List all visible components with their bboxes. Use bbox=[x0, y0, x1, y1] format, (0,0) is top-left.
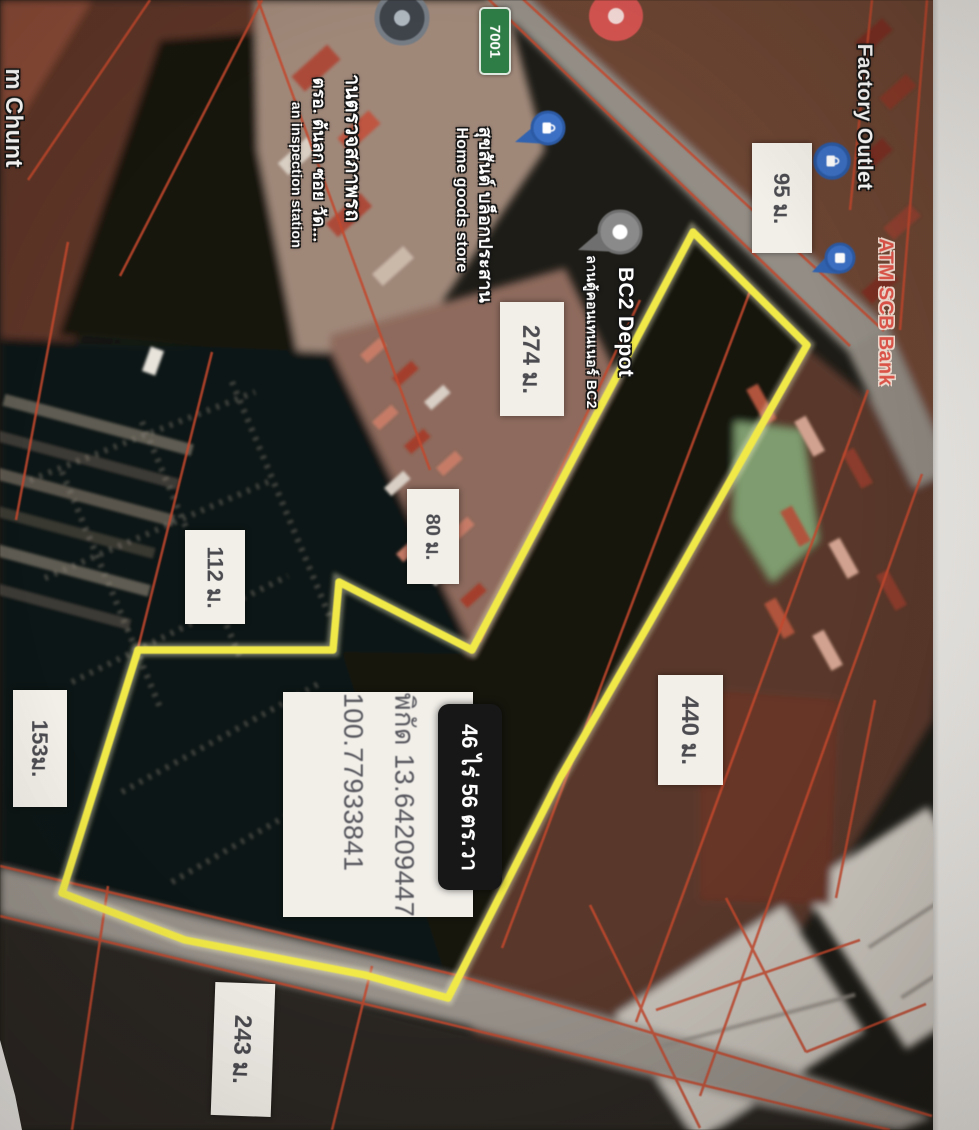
photo-margin-right bbox=[933, 0, 979, 1130]
coordinates-text: พิกัด 13.64209447 100.77933841 bbox=[327, 692, 430, 916]
measurement-text: 95 ม. bbox=[764, 172, 799, 223]
poi-label-partial-left[interactable]: m Chunt bbox=[0, 68, 27, 167]
route-badge-7001: 7001 bbox=[479, 7, 511, 75]
area-badge: 46 ไร่ 56 ตร.วา bbox=[438, 704, 502, 890]
poi-label-home-goods-thai[interactable]: สุขสันต์ บล็อกประสาน bbox=[472, 127, 501, 303]
measurement-text: 112 ม. bbox=[198, 546, 233, 608]
place-pin-dark-icon[interactable] bbox=[377, 0, 427, 43]
poi-label-inspection-en[interactable]: an inspection station bbox=[289, 102, 305, 248]
coordinate-line-1: พิกัด 13.64209447 bbox=[378, 692, 429, 916]
shopping-pin-blue-icon[interactable] bbox=[815, 144, 849, 178]
measurement-label-153m: 153ม. bbox=[13, 690, 67, 807]
map-photo: Factory Outlet ATM SCB Bank สุขสันต์ บล็… bbox=[0, 0, 979, 1130]
measurement-label-80m: 80 ม. bbox=[407, 489, 459, 584]
measurement-label-95m: 95 ม. bbox=[752, 143, 812, 253]
measurement-text: 80 ม. bbox=[417, 513, 449, 560]
poi-label-inspection-thai-2[interactable]: ตรอ. ต้นลก ซอย วัด... bbox=[306, 78, 333, 243]
measurement-text: 274 ม. bbox=[513, 324, 552, 393]
measurement-text: 440 ม. bbox=[671, 695, 710, 764]
measurement-label-243m: 243 ม. bbox=[211, 982, 276, 1117]
route-badge-text: 7001 bbox=[487, 24, 504, 57]
measurement-label-112m: 112 ม. bbox=[185, 530, 245, 624]
poi-label-factory-outlet[interactable]: Factory Outlet bbox=[852, 44, 876, 191]
poi-label-atm-scb-bank[interactable]: ATM SCB Bank bbox=[874, 238, 897, 386]
poi-label-bc2-depot-thai[interactable]: ลานตู้คอนเทนเนอร์ BC2 bbox=[580, 255, 602, 409]
poi-label-inspection-thai-1[interactable]: านตรวจสภาพรถ bbox=[337, 74, 369, 222]
measurement-label-440m: 440 ม. bbox=[658, 675, 723, 785]
measurement-label-274m: 274 ม. bbox=[500, 302, 564, 416]
poi-label-home-goods-en[interactable]: Home goods store bbox=[452, 127, 470, 272]
area-badge-text: 46 ไร่ 56 ตร.วา bbox=[453, 723, 488, 870]
coordinate-line-2: 100.77933841 bbox=[327, 692, 378, 916]
poi-label-bc2-depot[interactable]: BC2 Depot bbox=[613, 267, 637, 377]
measurement-text: 243 ม. bbox=[222, 1014, 263, 1085]
measurement-text: 153ม. bbox=[23, 720, 58, 777]
